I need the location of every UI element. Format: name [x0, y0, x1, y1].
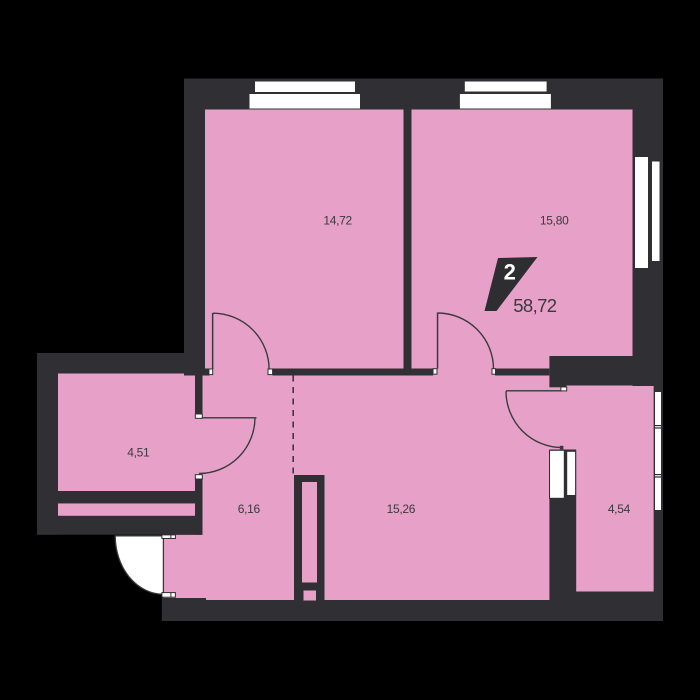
svg-text:4,54: 4,54	[608, 502, 631, 516]
svg-text:15,26: 15,26	[387, 502, 416, 516]
svg-text:6,16: 6,16	[238, 502, 261, 516]
svg-text:2: 2	[504, 259, 516, 284]
svg-text:15,80: 15,80	[540, 214, 569, 228]
svg-text:4,51: 4,51	[127, 446, 150, 460]
svg-text:58,72: 58,72	[513, 295, 557, 316]
svg-text:14,72: 14,72	[323, 214, 352, 228]
